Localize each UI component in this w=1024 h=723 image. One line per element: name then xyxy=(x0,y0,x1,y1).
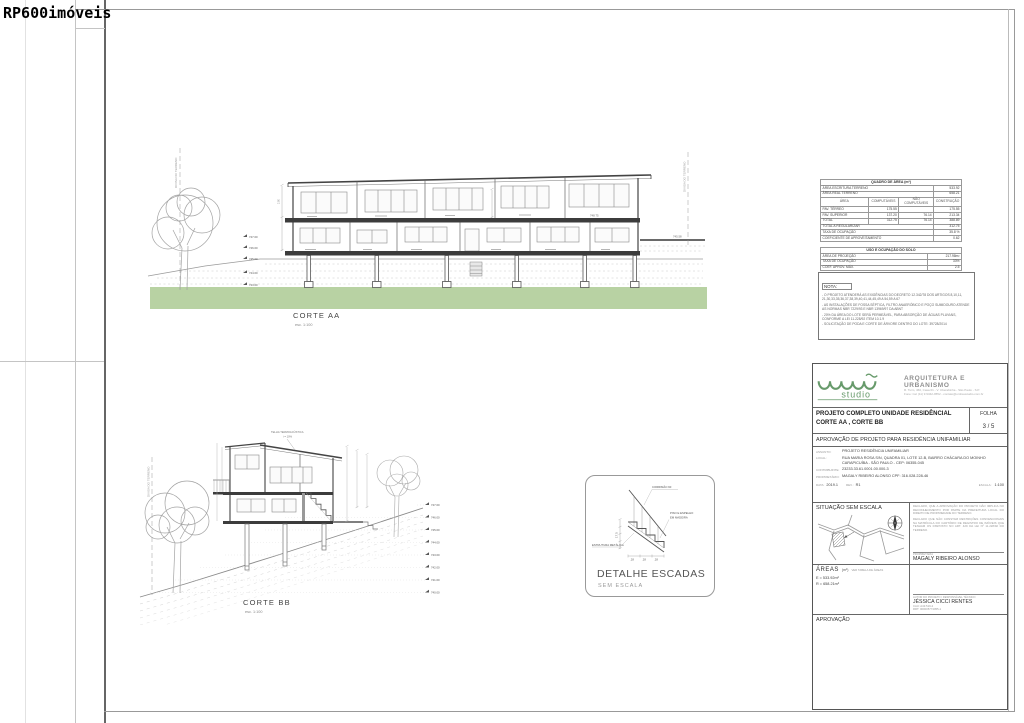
right-terrace: 745.58 xyxy=(640,235,705,252)
nota-item: - 20% DA ÁREA DO LOTE SERÁ PERMEÁVEL, PA… xyxy=(822,313,971,321)
tread-dim: .28 xyxy=(630,558,634,562)
situacao-row: SITUAÇÃO SEM ESCALA xyxy=(813,503,1007,565)
drawing-sheet: RP600imóveis DIVISA DO TERRENO xyxy=(0,0,1024,723)
project-title-line1: PROJETO COMPLETO UNIDADE RESIDÊNCIAL xyxy=(816,410,966,419)
nota-title: NOTA: xyxy=(822,283,852,290)
tree-icon xyxy=(152,188,220,290)
fold-line-top xyxy=(75,28,105,29)
logo-studio-text: studio xyxy=(841,389,871,399)
lower-windows xyxy=(300,227,629,251)
north-compass-icon xyxy=(888,515,902,531)
annotation-metal: ESTRUTURA METÁLICA xyxy=(592,543,624,547)
corte-bb-drawing: DIVISA DO TERRENO TELHA TERMOACÚSTICA i … xyxy=(125,425,465,625)
tree-icon xyxy=(377,456,420,537)
svg-text:DIVISA DO TERRENO: DIVISA DO TERRENO xyxy=(683,161,687,192)
data-label: DATA: xyxy=(816,482,824,487)
field-value: MAGALY RIBEIRO ALONSO CPF: 316.028.228-4… xyxy=(842,474,1004,479)
svg-text:746.00: 746.00 xyxy=(431,516,440,520)
nota-item: - O PROJETO ATENDERÁ AS EXIGÊNCIAS DO DE… xyxy=(822,293,971,301)
tread-dim: .28 xyxy=(654,558,658,562)
upper-windows xyxy=(301,184,629,213)
stair-detail-drawing: 17.5 .28 .28 .28 CORRIMÃO 90 PISO E ESPE… xyxy=(586,476,714,596)
data-value: 2019.1 xyxy=(826,483,838,487)
nota-box: NOTA: - O PROJETO ATENDERÁ AS EXIGÊNCIAS… xyxy=(818,272,975,340)
watermark-text: RP600imóveis xyxy=(3,4,111,22)
aprovacao-section: APROVAÇÃO xyxy=(813,615,1007,709)
fields-section: ASSUNTO:PROJETO RESIDÊNCIA UNIFAMILIAR L… xyxy=(813,447,1007,503)
corte-bb-scale: esc. 1:100 xyxy=(245,610,263,614)
title-block: studio ARQUITETURA E URBANISMO R. Tuim, … xyxy=(812,363,1008,710)
areas-title: ÁREAS xyxy=(816,567,839,573)
field-value: PROJETO RESIDÊNCIA UNIFAMILIAR xyxy=(842,449,1004,454)
lower-slab xyxy=(223,521,333,524)
escala-value: 1:100 xyxy=(994,483,1004,487)
address-line: Fone: Cel (11) 9 9342-9552 - contato@umb… xyxy=(904,393,1007,397)
situacao-title: SITUAÇÃO SEM ESCALA xyxy=(816,505,906,511)
svg-text:745.00: 745.00 xyxy=(431,528,440,532)
svg-text:743.00: 743.00 xyxy=(249,283,258,287)
dim-label: 2.80 xyxy=(278,199,281,204)
situacao-map xyxy=(816,512,906,562)
detail-title: DETALHE ESCADAS xyxy=(597,568,705,580)
folha-label: FOLHA xyxy=(980,411,997,417)
title-row: PROJETO COMPLETO UNIDADE RESIDÊNCIAL COR… xyxy=(813,408,1007,434)
area-tables: QUADRO DE ÁREA (m²) ÁREA ESCRITURA TERRE… xyxy=(820,179,962,271)
divisa-line-right: DIVISA DO TERRENO xyxy=(683,152,689,248)
lower-slab xyxy=(285,251,640,256)
annotation-wood: PISO E ESPELHO xyxy=(670,511,694,515)
svg-text:743.00: 743.00 xyxy=(431,553,440,557)
corte-aa-drawing: DIVISA DO TERRENO xyxy=(135,130,735,340)
declaration-text: DECLARO QUE NÃO CONSTAM RESTRIÇÕES CONVE… xyxy=(913,518,1004,533)
svg-text:DIVISA DO TERRENO: DIVISA DO TERRENO xyxy=(147,466,151,497)
riser-dim: 17.5 xyxy=(615,532,619,538)
sheet-border-left xyxy=(104,0,106,723)
rev-label: REV.: xyxy=(846,482,854,487)
quadro-de-area-table: QUADRO DE ÁREA (m²) ÁREA ESCRITURA TERRE… xyxy=(820,179,962,242)
corte-bb-label: CORTE BB xyxy=(243,598,291,607)
under-stair-block xyxy=(470,262,482,276)
sheet-border-top xyxy=(75,9,1015,10)
cut-wall xyxy=(302,493,305,521)
tread-dim: .28 xyxy=(642,558,646,562)
fold-line-horizontal xyxy=(0,361,104,362)
field-label: ASSUNTO: xyxy=(816,449,842,454)
folha-value: 3 / 5 xyxy=(983,424,995,430)
corte-aa-scale: esc. 1:100 xyxy=(295,323,313,327)
sheet-border-right xyxy=(1014,9,1015,712)
owner-name: MAGALY RIBEIRO ALONSO xyxy=(913,556,1004,562)
roof-note: TELHA TERMOACÚSTICA xyxy=(271,430,304,434)
nota-item: - AS INSTALAÇÕES DE FOSSA SÉPTICA, FILTR… xyxy=(822,303,971,311)
area-escritura-value: E = 533.92m² xyxy=(816,576,906,580)
areas-unit: (m²) xyxy=(842,568,849,572)
handrail-line xyxy=(629,490,666,536)
roof-main xyxy=(260,445,342,458)
grass-band xyxy=(150,287,707,309)
areas-note: VER TABELA DE ÁREAS xyxy=(851,568,883,572)
roof-upper xyxy=(225,443,265,447)
building-section-aa: 748.75 xyxy=(278,175,706,288)
svg-text:740.00: 740.00 xyxy=(431,591,440,595)
svg-text:EM MADEIRA: EM MADEIRA xyxy=(670,516,688,520)
svg-text:744.00: 744.00 xyxy=(249,271,258,275)
umbau-studio-logo-icon: studio xyxy=(813,369,900,403)
tree-icon xyxy=(145,481,209,593)
logo-row: studio ARQUITETURA E URBANISMO R. Tuim, … xyxy=(813,364,1007,408)
svg-text:747.00: 747.00 xyxy=(431,503,440,507)
svg-text:747.00: 747.00 xyxy=(249,235,258,239)
divisa-line-left: DIVISA DO TERRENO xyxy=(174,148,180,290)
stairs-bb xyxy=(306,493,331,521)
level-markers-bb: 747.00 746.00 745.00 744.00 743.00 742.0… xyxy=(425,502,440,594)
field-value: 23233.33.61.0001.00.000-3 xyxy=(842,467,1004,472)
area-real-value: R = 658.21m² xyxy=(816,582,906,586)
map-lot xyxy=(832,532,845,547)
sheet-inner-right xyxy=(1008,9,1009,712)
divisa-label: DIVISA DO TERRENO xyxy=(174,157,178,188)
upper-slab xyxy=(285,218,640,223)
lower-windows xyxy=(237,499,296,512)
escala-label: ESCALA: xyxy=(979,482,992,487)
map-roads xyxy=(818,515,904,561)
owner-signature: PROPRIETÁRIA MAGALY RIBEIRO ALONSO xyxy=(913,552,1004,563)
uso-ocupacao-table: USO E OCUPAÇÃO DO SOLO ÁREA DE PROJEÇÃO2… xyxy=(820,247,962,271)
upper-slab xyxy=(223,492,333,495)
level-grid-bb xyxy=(150,505,425,593)
project-title-line2: CORTE AA , CORTE BB xyxy=(816,419,966,428)
author-signature: AUTOR DO PROJETO / RESPONSÁVEL TÉCNICO J… xyxy=(913,594,1004,612)
svg-text:745.00: 745.00 xyxy=(249,257,258,261)
subtitle-row: APROVAÇÃO DE PROJETO PARA RESIDÊNCIA UNI… xyxy=(813,434,1007,447)
field-label: CONTRIBUINTE: xyxy=(816,467,842,472)
svg-text:746.00: 746.00 xyxy=(249,246,258,250)
field-label: PROPRIETÁRIO: xyxy=(816,474,842,479)
level-label-upper: 748.75 xyxy=(590,214,599,218)
field-value: RUA MARIA ROSA S/N, QUADRA 01, LOTE 12-B… xyxy=(842,456,1004,466)
field-label: LOCAL: xyxy=(816,456,842,466)
nota-item: - SOLICITAÇÃO DE PODA E CORTE DE ÁRVORE … xyxy=(822,322,971,326)
svg-text:742.00: 742.00 xyxy=(431,566,440,570)
door-opening xyxy=(465,229,479,251)
terrain-bb xyxy=(140,508,423,625)
author-rrt: RRT: 000005774055-1 xyxy=(913,608,1004,612)
level-label-terrace: 745.58 xyxy=(673,235,682,239)
folha-cell: FOLHA 3 / 5 xyxy=(969,408,1007,433)
upper-windows xyxy=(235,455,312,483)
divisa-line-bb: DIVISA DO TERRENO xyxy=(147,457,153,595)
stair-detail-box: 17.5 .28 .28 .28 CORRIMÃO 90 PISO E ESPE… xyxy=(585,475,715,597)
detail-subtitle: SEM ESCALA xyxy=(598,583,643,589)
svg-text:744.00: 744.00 xyxy=(431,541,440,545)
terrain-aa xyxy=(148,259,703,284)
areas-row: ÁREAS (m²) VER TABELA DE ÁREAS E = 533.9… xyxy=(813,565,1007,615)
pile-foundations xyxy=(245,524,326,570)
annotation-handrail: CORRIMÃO 90 xyxy=(652,484,672,489)
corte-aa-label: CORTE AA xyxy=(293,311,340,320)
svg-text:i = 10%: i = 10% xyxy=(283,435,293,439)
svg-text:741.00: 741.00 xyxy=(431,578,440,582)
rev-value: R1 xyxy=(856,483,861,487)
arch-title: ARQUITETURA E URBANISMO xyxy=(904,375,1007,389)
roof-line xyxy=(288,175,651,183)
sheet-border-bottom xyxy=(104,711,1015,712)
declaration-text: DECLARO, QUE A APROVAÇÃO DO PROJETO NÃO … xyxy=(913,505,1004,516)
